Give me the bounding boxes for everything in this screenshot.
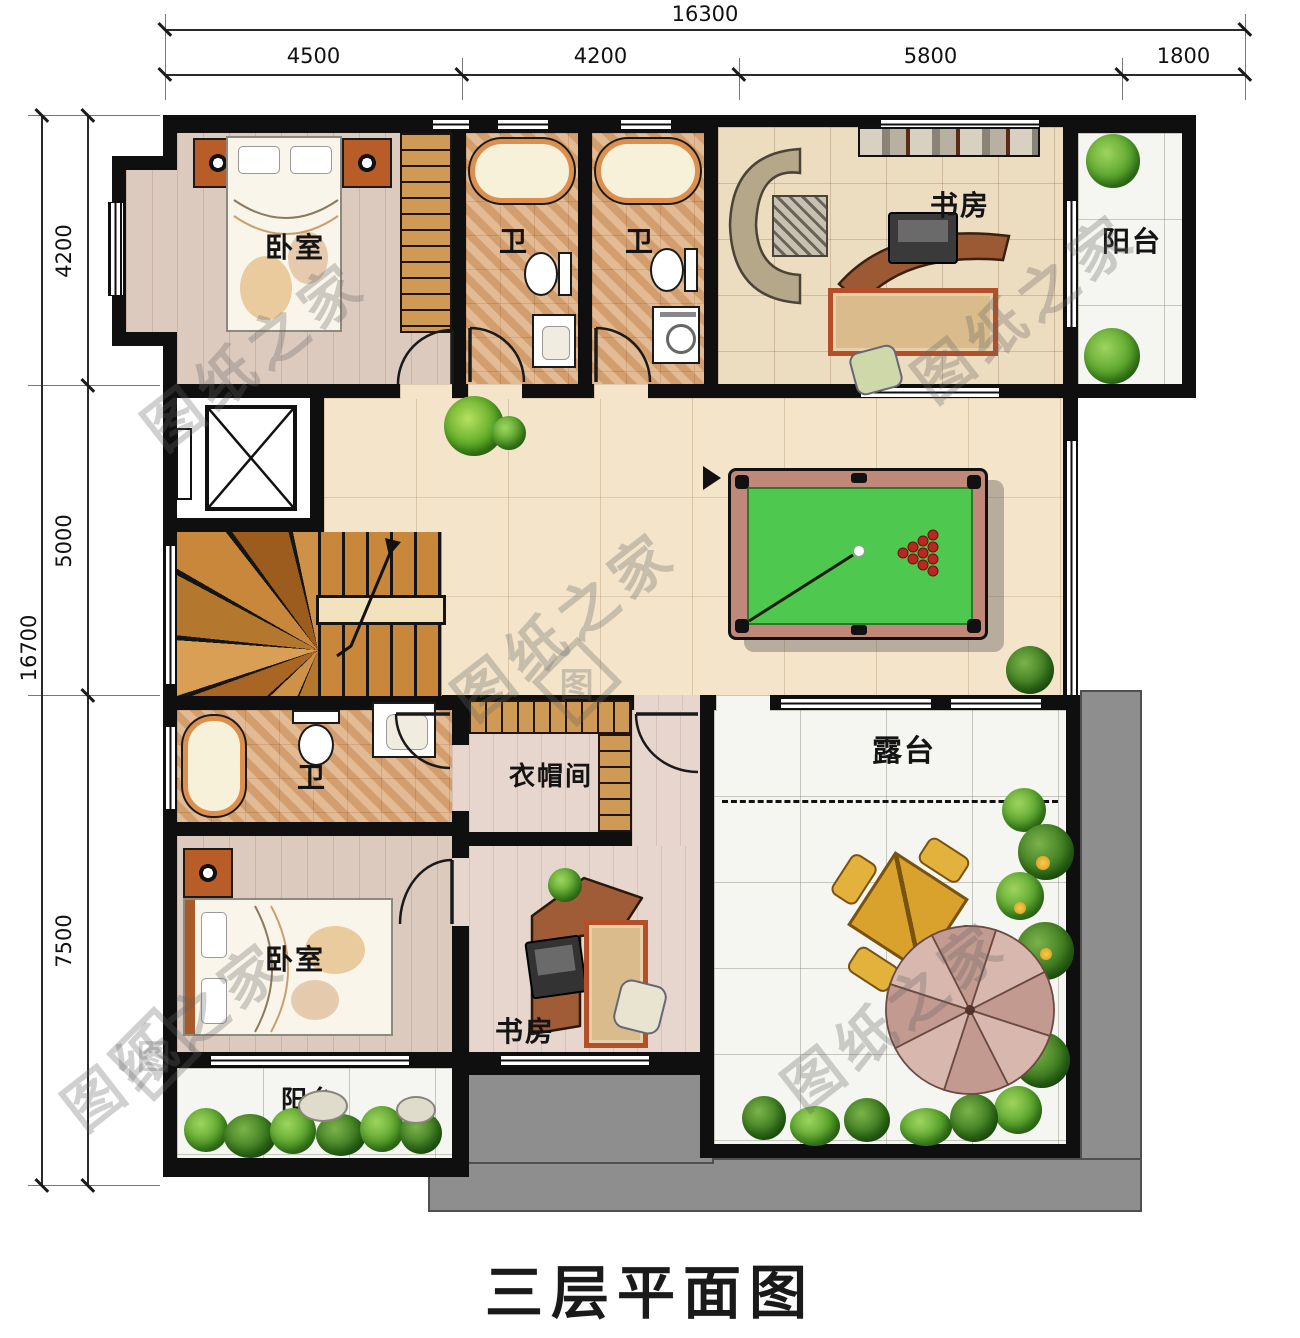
door-gap: [716, 695, 770, 711]
dim-top-seg-5800: 5800: [739, 44, 1122, 68]
plant: [1018, 824, 1074, 880]
washer-panel: [660, 312, 696, 317]
dim-left-seg-7500: 7500: [52, 881, 76, 1001]
flower: [1036, 856, 1050, 870]
roof-bottom: [428, 1158, 1142, 1212]
toilet-tank: [292, 710, 340, 724]
dim-top-seg-4500: 4500: [165, 44, 462, 68]
toilet-tank: [558, 252, 572, 296]
room-label-terrace: 露台: [844, 726, 964, 770]
computer: [524, 934, 588, 999]
wardrobe: [400, 133, 452, 333]
sink: [532, 314, 576, 368]
dim-top-total: 16300: [165, 2, 1245, 26]
watermark-logo-char: 图: [137, 1030, 171, 1079]
bathtub: [183, 716, 245, 816]
door: [468, 326, 526, 384]
dim-line-seg-top: [165, 74, 1245, 76]
rock: [396, 1096, 436, 1124]
window: [497, 117, 549, 131]
plant: [742, 1096, 786, 1140]
room-label-cloakroom: 衣帽间: [470, 756, 632, 793]
bathtub: [596, 139, 700, 203]
nightstand: [342, 138, 392, 188]
plant: [548, 868, 582, 902]
plant: [224, 1114, 276, 1158]
plan-title: 三层平面图: [350, 1246, 950, 1330]
toilet-tank: [684, 248, 698, 292]
door: [594, 326, 652, 384]
room-bedroom-top-alcove: [126, 170, 178, 332]
door-gap: [452, 858, 469, 926]
dim-top-seg-1800: 1800: [1122, 44, 1245, 68]
plant: [1084, 328, 1140, 384]
roof-under-study: [455, 1068, 714, 1164]
plant: [1086, 134, 1140, 188]
dim-line-seg-left: [87, 115, 89, 1185]
window: [432, 117, 470, 131]
room-label-bath-top-right: 卫: [618, 220, 662, 260]
plant: [184, 1108, 228, 1152]
dim-line-total-top: [165, 29, 1245, 31]
flower: [1014, 902, 1026, 914]
door: [398, 858, 454, 928]
plant: [844, 1098, 890, 1142]
bathtub: [470, 139, 574, 203]
room-label-bath-top-left: 卫: [492, 220, 536, 260]
room-label-bath-bottom: 卫: [290, 756, 334, 796]
window: [500, 1053, 650, 1067]
window: [163, 726, 177, 810]
computer-screen: [534, 945, 575, 976]
door-gap: [452, 745, 469, 811]
bookshelf: [858, 127, 1040, 157]
door: [396, 328, 454, 386]
plant: [492, 416, 526, 450]
window: [950, 696, 1042, 709]
window: [780, 696, 932, 709]
door-gap: [594, 384, 648, 399]
plant: [1006, 646, 1054, 694]
dim-left-seg-4200: 4200: [52, 191, 76, 311]
door: [394, 712, 452, 770]
door: [634, 712, 700, 774]
cue-and-balls: [731, 471, 991, 643]
dim-left-seg-5000: 5000: [52, 481, 76, 601]
dim-ext-line: [28, 115, 160, 116]
window: [163, 545, 177, 685]
room-label-study-bottom: 书房: [470, 1010, 580, 1050]
watermark-logo-char: 图: [560, 658, 594, 707]
wall-marker: [703, 466, 723, 490]
dim-ext-line: [28, 695, 160, 696]
room-label-study-top: 书房: [905, 184, 1015, 224]
dim-line-total-left: [41, 115, 43, 1185]
floor-plan-canvas: 16300 4500 4200 5800 1800 16700 4200 500…: [0, 0, 1300, 1338]
washer-drum: [666, 324, 696, 354]
dim-top-seg-4200: 4200: [462, 44, 739, 68]
stairs-winders: [177, 532, 318, 696]
window: [1064, 440, 1078, 696]
nightstand: [183, 848, 233, 898]
window: [108, 202, 124, 296]
plant: [900, 1108, 952, 1146]
dim-ext-line: [28, 1185, 160, 1186]
dim-left-total: 16700: [17, 583, 41, 713]
roof-right: [1080, 690, 1142, 1210]
window: [620, 117, 672, 131]
rock: [298, 1090, 348, 1122]
door-gap: [634, 695, 700, 711]
washing-machine: [652, 306, 700, 364]
stairs-direction-arrow: [325, 528, 410, 663]
billiard-table: [728, 468, 988, 640]
ottoman: [772, 195, 828, 257]
sink-bowl: [542, 326, 570, 360]
door-gap: [400, 384, 452, 399]
window: [210, 1053, 410, 1067]
